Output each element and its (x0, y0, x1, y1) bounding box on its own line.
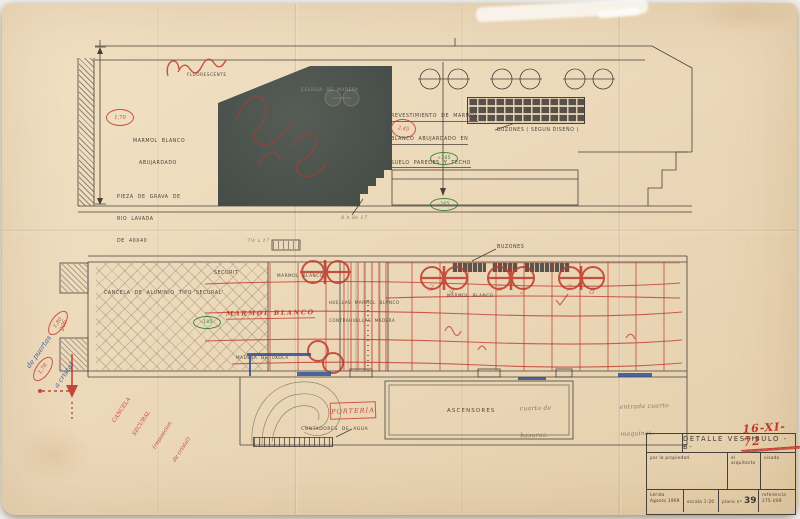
field-visado: visado (761, 453, 795, 489)
red-note-porteria: PORTERIA (331, 406, 375, 416)
label-line: DE 40X40 (117, 238, 181, 245)
label-revestimiento: REVESTIMIENTO DE MARMOL BLANCO ABUJARDAD… (391, 99, 478, 183)
note-line: a cristal (52, 353, 83, 390)
note-huellas-escalera: 8 h de 17 (341, 215, 367, 223)
note-line: (reposicion (151, 421, 175, 451)
blue-mark (618, 373, 652, 377)
note-line: cuarto de (520, 404, 552, 414)
field-plano: plano nº 39 (719, 490, 759, 512)
label-celosia-madera: CELOSIA DE MADERA (301, 87, 358, 93)
label-line: MARMOL BLANCO (133, 138, 185, 145)
field-referencia: referencia 275-I/69 (759, 490, 795, 512)
red-dim-altura: 1,70 (106, 109, 134, 126)
label-fluorescente: FLUORESCENTE (187, 72, 227, 78)
scanned-drawing-background: FLUORESCENTE MARMOL BLANCO ABUJARDADO PI… (0, 0, 800, 519)
level-marker-superior: +265 (430, 152, 458, 165)
title-block-row-signatures: por la propiedad el arquitecto visado (647, 453, 795, 490)
red-note-marmol-blanco: MARMOL BLANCO (226, 308, 315, 320)
field-el-arquitecto: el arquitecto (728, 453, 761, 489)
note-dimension-peldano: 7½ x 17 (247, 238, 270, 246)
field-por-la-propiedad: por la propiedad (647, 453, 728, 489)
red-digit: 5 (496, 284, 503, 295)
level-marker-planta: -185 (193, 316, 221, 329)
label-contadores-agua: CONTADORES DE AGUA (301, 427, 368, 434)
label-line: PIEZA DE GRAVA DE (117, 194, 181, 201)
label-marmol-blanco-abujardado: MARMOL BLANCO ABUJARDADO (133, 124, 185, 182)
field-city-date: Lérida Agosto 1969 (647, 490, 684, 512)
title-block-row-meta: Lérida Agosto 1969 escala 1:20 plano nº … (647, 490, 795, 512)
red-digit: 3 (427, 284, 434, 295)
note-line: basuras. (520, 431, 552, 441)
red-date-stamp: 16-XI-72 (739, 419, 800, 451)
month-year: Agosto 1969 (650, 498, 683, 504)
label-cancela-aluminio: CANCELA DE ALUMINIO TIPO 'SECURAL' (104, 290, 224, 297)
blue-mark (518, 377, 546, 380)
label-line: RIO LAVADA (117, 216, 181, 223)
plano-prefix: plano nº (722, 499, 742, 505)
blue-mark (297, 372, 331, 376)
label-huellas: HUELLAS MARMOL BLANCO CONTRAHUELLAS MADE… (329, 288, 400, 336)
red-note-porteria-box: PORTERIA (330, 401, 377, 420)
pencil-note-basuras: cuarto de basuras. (519, 386, 552, 459)
note-line: de puertas (24, 334, 55, 371)
label-madera-ukola: MADERA DE UKOLA (236, 355, 289, 361)
title-block-logo-cell (647, 434, 683, 452)
label-marmol-blanco-portal: MARMOL BLANCO (277, 273, 324, 279)
label-ascensores: ASCENSORES (447, 407, 496, 415)
plano-number: 39 (744, 495, 757, 509)
label-pieza-grava: PIEZA DE GRAVA DE RIO LAVADA DE 40X40 (117, 180, 181, 259)
field-escala: escala 1:20 (684, 490, 719, 512)
note-line: entrada cuarto (619, 401, 669, 412)
label-securit: SECURIT (214, 270, 238, 277)
label-line: ABUJARDADO (133, 160, 185, 167)
level-marker-inferior: -265 (430, 198, 458, 211)
label-line: CONTRAHUELLAS MADERA (329, 318, 400, 324)
note-line: CANCELA (111, 395, 135, 425)
referencia-number: 275-I/69 (762, 498, 795, 504)
label-line: HUELLAS MARMOL BLANCO (329, 300, 400, 306)
note-line: de cristal) (172, 434, 196, 464)
note-line: SECURAL (131, 408, 155, 438)
label-buzones-elevacion: BUZONES ( SEGUN DISEÑO ) (497, 127, 579, 134)
label-buzones-planta: BUZONES (497, 244, 524, 251)
red-digit: 7 (565, 284, 572, 295)
